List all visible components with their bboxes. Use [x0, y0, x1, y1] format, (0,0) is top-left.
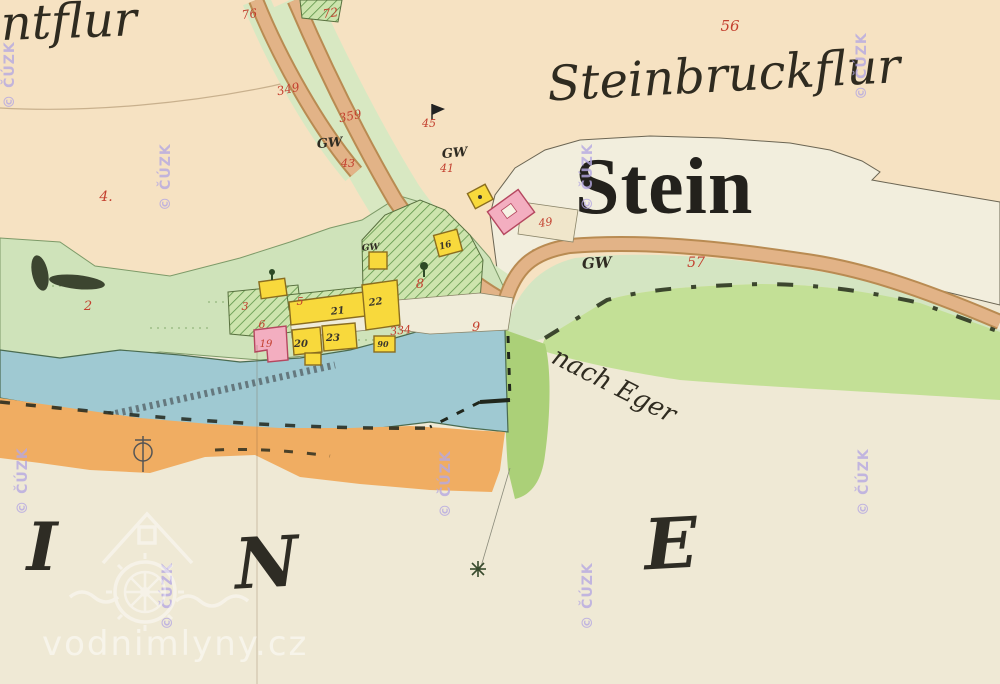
parcel-number: 49 [537, 215, 554, 230]
parcel-number: 334 [390, 323, 412, 338]
district-letter: I [25, 508, 60, 586]
building-door-dot [478, 195, 482, 199]
building-small [305, 353, 321, 365]
land-use-label: GW [362, 242, 381, 254]
district-letter: E [640, 501, 701, 587]
parcel-number: 3 [242, 300, 249, 313]
cuzk-watermark: © ČÚZK [578, 143, 596, 211]
cuzk-watermark: © ČÚZK [578, 562, 596, 630]
parcel-number: 76 [241, 6, 258, 22]
cuzk-watermark: © ČÚZK [436, 450, 454, 518]
settlement-label-stein: Stein [575, 143, 753, 231]
flur-label-left: intflur [0, 0, 141, 52]
parcel-number: 4. [98, 189, 112, 205]
parcel-number: 57 [687, 255, 705, 271]
building-gw-hut [369, 252, 387, 269]
house-number: 20 [293, 339, 308, 350]
district-letter: N [231, 519, 304, 605]
site-watermark-text: vodnimlyny.cz [42, 624, 308, 664]
cadastral-map-scan: intflur Steinbruckflur Stein nach Eger I… [0, 0, 1000, 684]
cuzk-watermark: © ČÚZK [0, 41, 18, 109]
parcel-number: 5 [297, 295, 304, 308]
house-number: 21 [329, 305, 345, 317]
house-number: 90 [377, 339, 389, 349]
parcel-number: 9 [472, 320, 480, 335]
mill-wheel-spokes [125, 572, 165, 612]
parcel-number: 43 [340, 157, 355, 170]
cuzk-watermark: © ČÚZK [852, 32, 870, 100]
house-number: 23 [325, 333, 340, 344]
building-14 [259, 278, 287, 298]
parcel-number: 45 [421, 117, 436, 130]
map-canvas: intflur Steinbruckflur Stein nach Eger I… [0, 0, 1000, 684]
parcel-number: 56 [720, 17, 740, 35]
land-use-label: GW [441, 145, 469, 162]
land-use-label: GW [581, 253, 614, 273]
cuzk-watermark: © ČÚZK [13, 447, 31, 515]
house-number: 22 [367, 296, 383, 309]
parcel-number: 6 [259, 318, 266, 331]
parcel-number: 19 [260, 339, 273, 350]
parcel-number: 8 [416, 277, 424, 292]
parcel-number: 2 [83, 299, 92, 314]
cuzk-watermark: © ČÚZK [156, 143, 174, 211]
cuzk-watermark: © ČÚZK [854, 448, 872, 516]
parcel-number: 41 [439, 162, 454, 175]
land-use-label: GW [316, 135, 344, 152]
parcel-number: 72 [322, 5, 339, 21]
